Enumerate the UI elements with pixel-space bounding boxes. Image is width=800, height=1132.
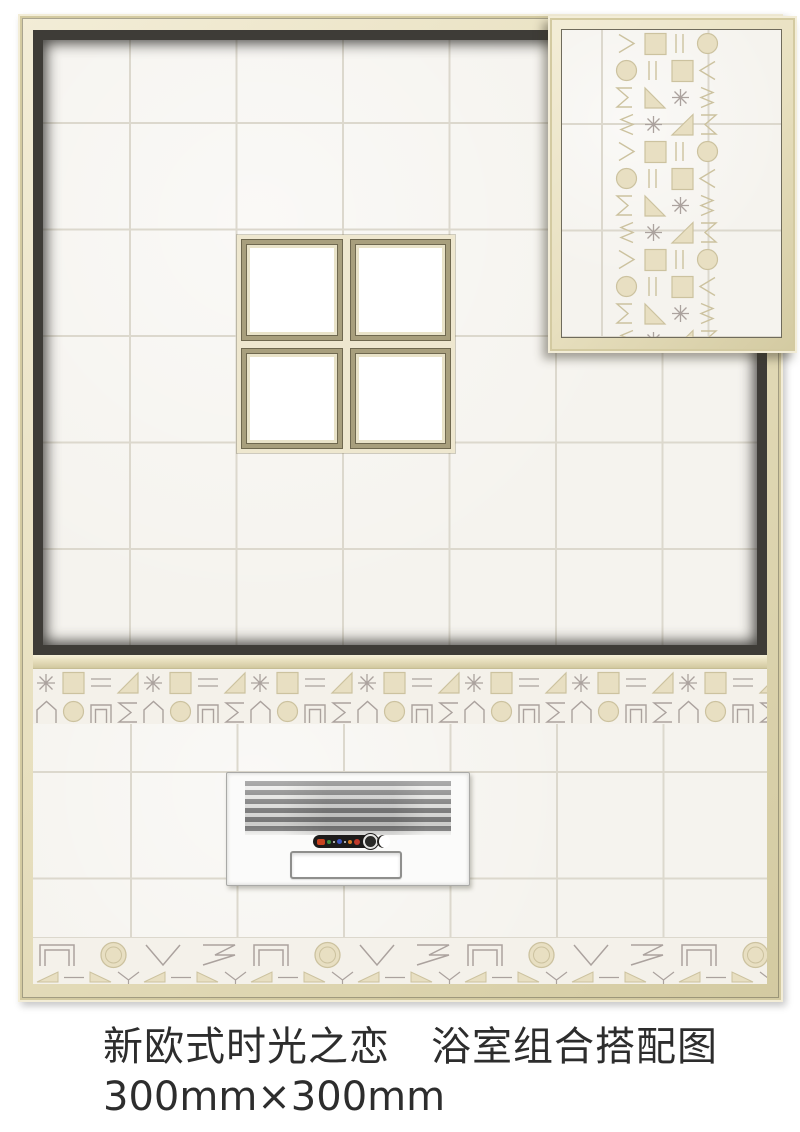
heater-control-panel: [313, 835, 391, 849]
control-knob: [377, 835, 390, 848]
power-indicator: [317, 839, 325, 845]
inset-strip-pattern-svg: [613, 30, 721, 337]
corner-inset-panel: [548, 16, 797, 353]
control-dial: [363, 834, 378, 849]
caption-size: 300mm×300mm: [103, 1072, 718, 1122]
mid-divider-bar: [33, 655, 767, 669]
heater-light-vent: [290, 851, 402, 879]
white-indicator: [333, 841, 335, 843]
window-pane: [350, 348, 452, 450]
caption: 新欧式时光之恋 浴室组合搭配图 300mm×300mm: [103, 1022, 718, 1122]
bottom-border-strip: [33, 937, 767, 984]
lower-wall-tiles: [33, 724, 767, 937]
white-indicator: [344, 841, 346, 843]
inset-deco-strip: [613, 30, 721, 337]
window-pane: [241, 348, 343, 450]
mid-border-row2-svg: [33, 697, 767, 724]
orange-indicator: [348, 840, 352, 844]
window-pane: [350, 239, 452, 341]
tile-showroom-poster: 新欧式时光之恋 浴室组合搭配图 300mm×300mm: [0, 0, 800, 1132]
window-frame: [237, 235, 455, 453]
green-indicator: [327, 840, 331, 844]
red-indicator: [354, 839, 360, 845]
mid-border-row1-svg: [33, 669, 767, 697]
caption-title: 新欧式时光之恋 浴室组合搭配图: [103, 1022, 718, 1072]
heater-grille: [245, 781, 451, 835]
blue-indicator: [337, 839, 342, 844]
bath-heater-unit: [226, 772, 470, 886]
bottom-border-row2-svg: [33, 969, 767, 984]
mid-border-strip: [33, 669, 767, 724]
inset-tiles: [562, 30, 781, 337]
window-pane: [241, 239, 343, 341]
bottom-border-row1-svg: [33, 938, 767, 969]
